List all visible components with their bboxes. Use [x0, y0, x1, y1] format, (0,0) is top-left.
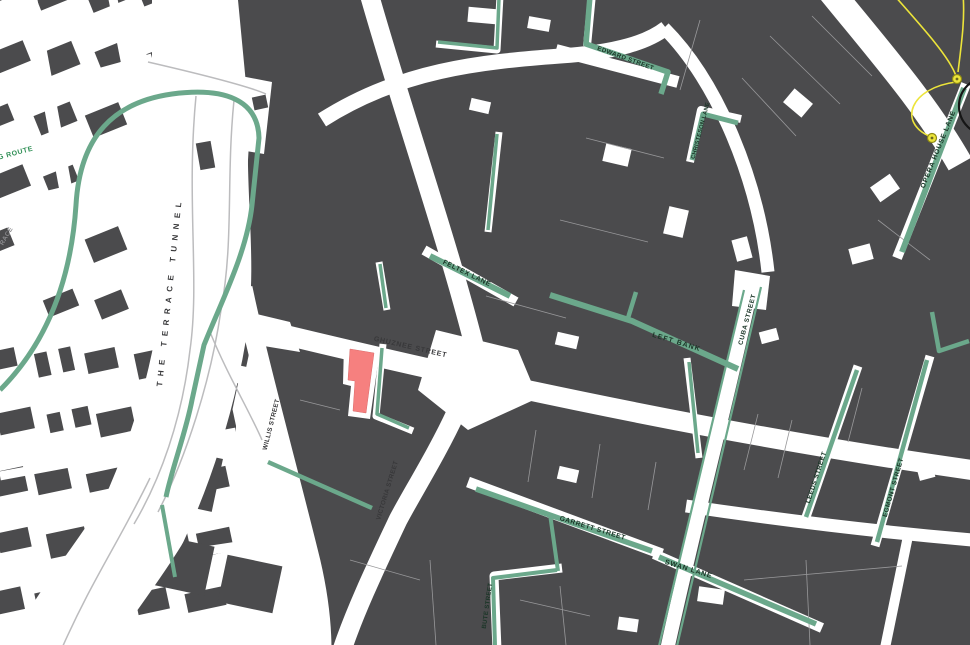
figure-ground-map: GHUZNEE STREETWILLIS STREETVICTORIA STRE…	[0, 0, 970, 645]
courtyard	[617, 617, 639, 633]
route-node-dot	[956, 78, 959, 81]
map-canvas: GHUZNEE STREETWILLIS STREETVICTORIA STRE…	[0, 0, 970, 645]
route-node-dot	[931, 137, 934, 140]
courtyard	[467, 7, 496, 24]
